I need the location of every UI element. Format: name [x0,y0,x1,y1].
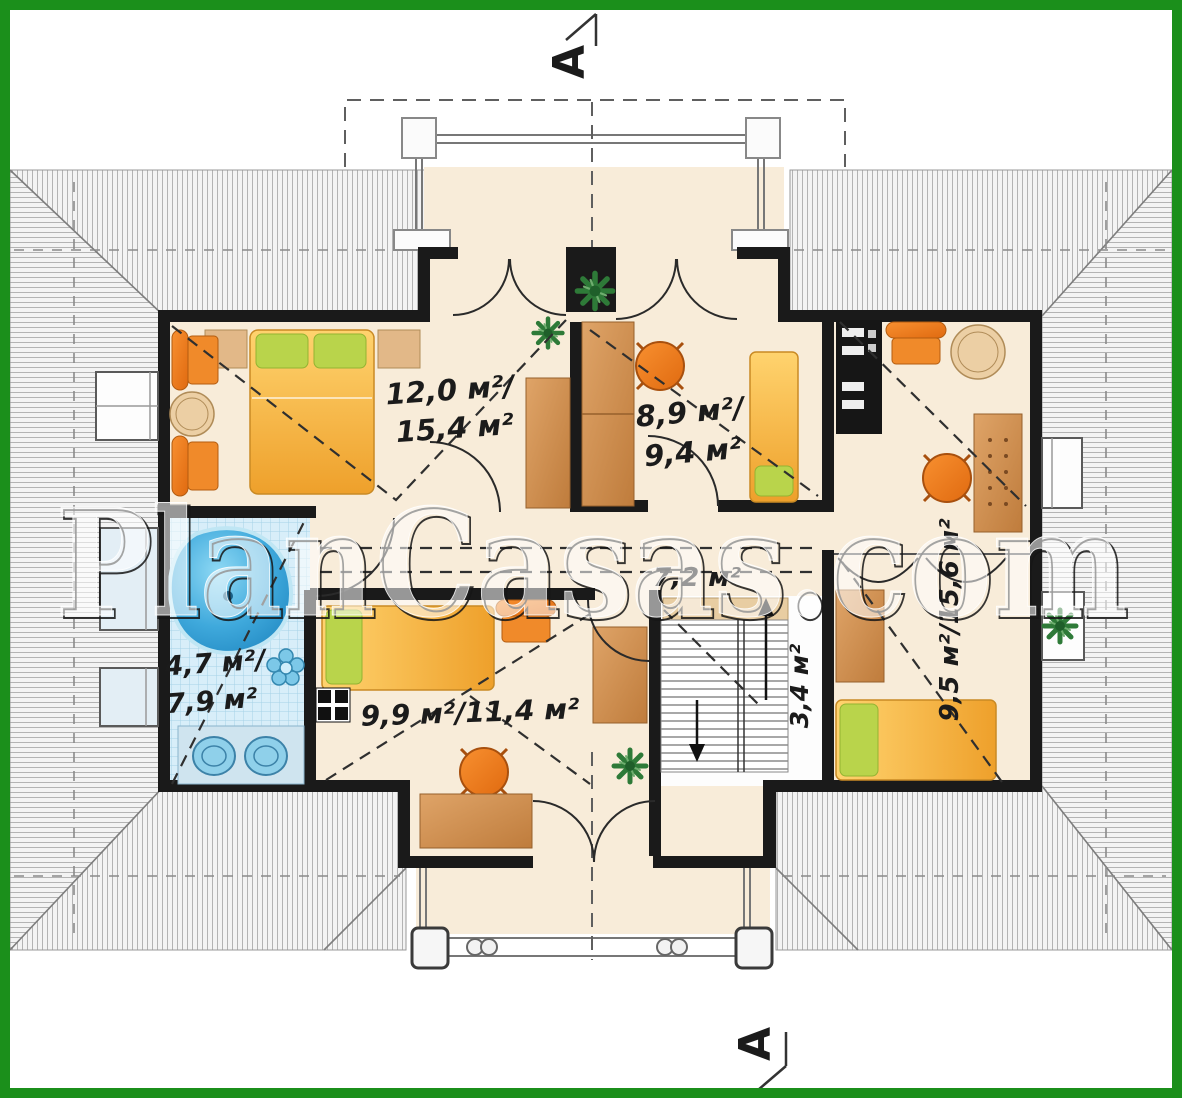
room-label-staircase: 3,4 м² [785,644,814,728]
plant-icon [614,750,646,782]
watermark: PlanCasas.com PlanCasas.com [55,476,1130,653]
railing-knot-left [467,939,497,955]
media-shelf-unit [836,320,882,434]
railing-knot-right [657,939,687,955]
pillow [314,334,366,368]
desk-chair [460,748,508,796]
washbasin [245,737,287,775]
window-bedroom-top-left [96,372,158,440]
plant-icon [534,319,563,348]
balcony-post-left [412,928,448,968]
pillow [256,334,308,368]
floor-plan-canvas: 12,0 м²/ 15,4 м² 8,9 м²/ 9,4 м² 4,7 м²/ … [0,0,1182,1098]
balcony-post-right [736,928,772,968]
desk-chair [636,342,684,390]
svg-text:PlanCasas.com: PlanCasas.com [55,476,1127,650]
svg-text:A: A [730,1027,781,1061]
balcony-column-right [746,118,780,158]
svg-text:A: A [544,45,595,79]
balcony-column-left [402,118,436,158]
pillow [840,704,878,776]
chimney-block-icon [316,688,350,722]
washbasin [193,737,235,775]
section-marker-top: A [544,14,596,79]
side-table [170,392,214,436]
section-marker-bottom: A [730,1027,786,1090]
desk [420,794,532,848]
window-bathroom-2 [100,668,158,726]
plant-icon [577,273,612,308]
armchair [172,330,218,390]
round-table [951,325,1005,379]
nightstand [378,330,420,368]
armchair [886,322,946,364]
room-label-bathroom-2: 7,9 м² [165,683,258,720]
